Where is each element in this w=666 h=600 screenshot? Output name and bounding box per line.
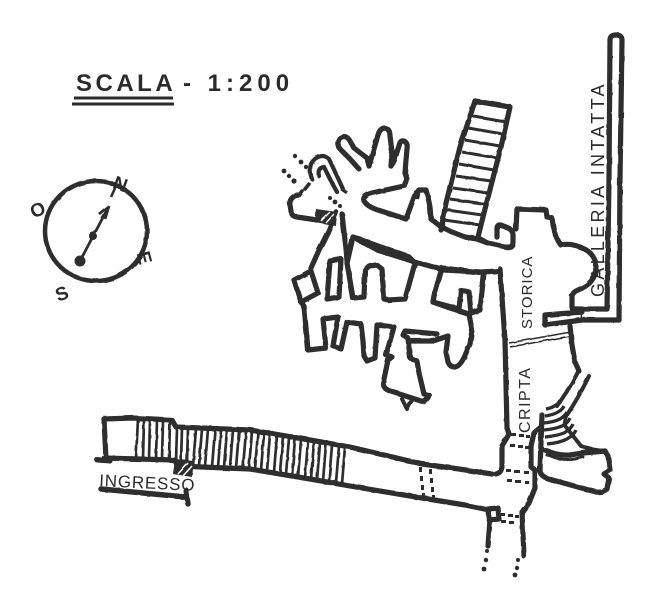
svg-text:- 1:200: - 1:200 xyxy=(183,70,294,97)
svg-text:CRIPTA: CRIPTA xyxy=(517,367,534,433)
svg-text:GALLERIA INTATTA: GALLERIA INTATTA xyxy=(588,81,608,297)
svg-text:S: S xyxy=(53,283,72,307)
svg-text:E: E xyxy=(132,249,156,267)
svg-text:SCALA: SCALA xyxy=(76,70,176,97)
svg-text:STORICA: STORICA xyxy=(519,256,536,329)
